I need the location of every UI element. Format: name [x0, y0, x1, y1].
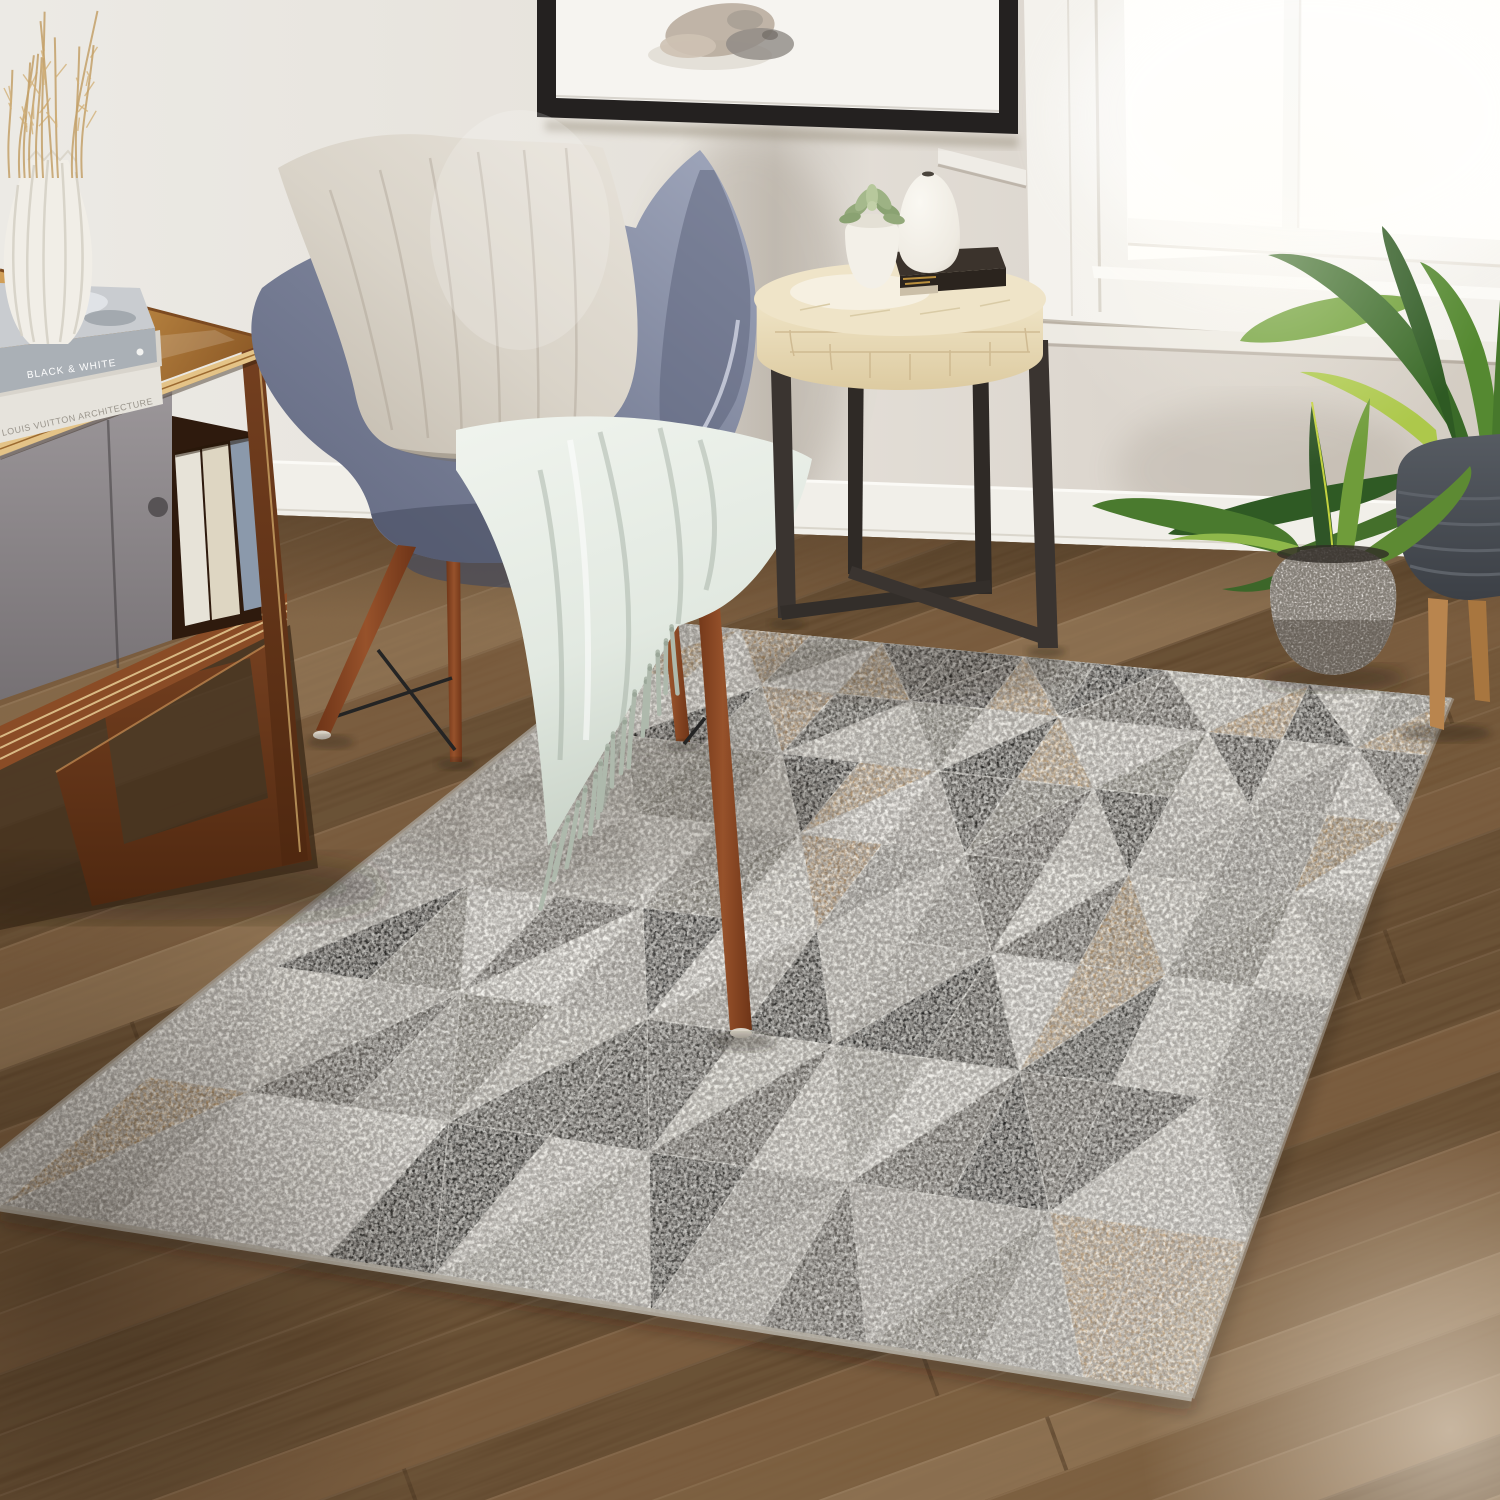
fringe-knot: [664, 641, 669, 646]
light-wash-bottom-right: [1140, 1120, 1500, 1500]
pot-soil: [1277, 545, 1389, 563]
egg-vase-mouth: [922, 172, 934, 177]
fringe-knot: [611, 734, 616, 739]
spine-logo-mark: [137, 349, 144, 356]
fringe-knot: [647, 666, 652, 671]
vignette-left: [0, 880, 460, 1500]
fringe-knot: [583, 788, 588, 793]
fringe-knot: [632, 692, 637, 697]
fringe-knot: [593, 774, 598, 779]
door-finger-hole: [148, 497, 168, 517]
fringe-tassel: [612, 734, 613, 787]
fringe-tassel: [658, 652, 660, 714]
grass-seed-branch: [56, 110, 57, 127]
scene-canvas: LOUIS VUITTON ARCHITECTURE BLACK & WHITE: [0, 0, 1500, 1500]
window-light-spill: [1040, 30, 1500, 470]
fringe-knot: [598, 761, 603, 766]
foot-shadow-fr: [712, 1033, 776, 1051]
marble-swirl-dark: [84, 310, 136, 326]
fringe-knot: [669, 627, 674, 632]
pillow-highlight: [430, 110, 610, 350]
foot-shadow-bl: [436, 758, 476, 770]
foot-shadow-fl: [306, 735, 354, 749]
living-room-photo: LOUIS VUITTON ARCHITECTURE BLACK & WHITE: [0, 0, 1500, 1500]
fringe-knot: [552, 844, 557, 849]
planter-shadow: [1399, 724, 1491, 742]
fringe-knot: [576, 803, 581, 808]
fringe-knot: [622, 720, 627, 725]
fringe-knot: [605, 746, 610, 751]
fringe-knot: [566, 818, 571, 823]
fringe-knot: [655, 652, 660, 657]
